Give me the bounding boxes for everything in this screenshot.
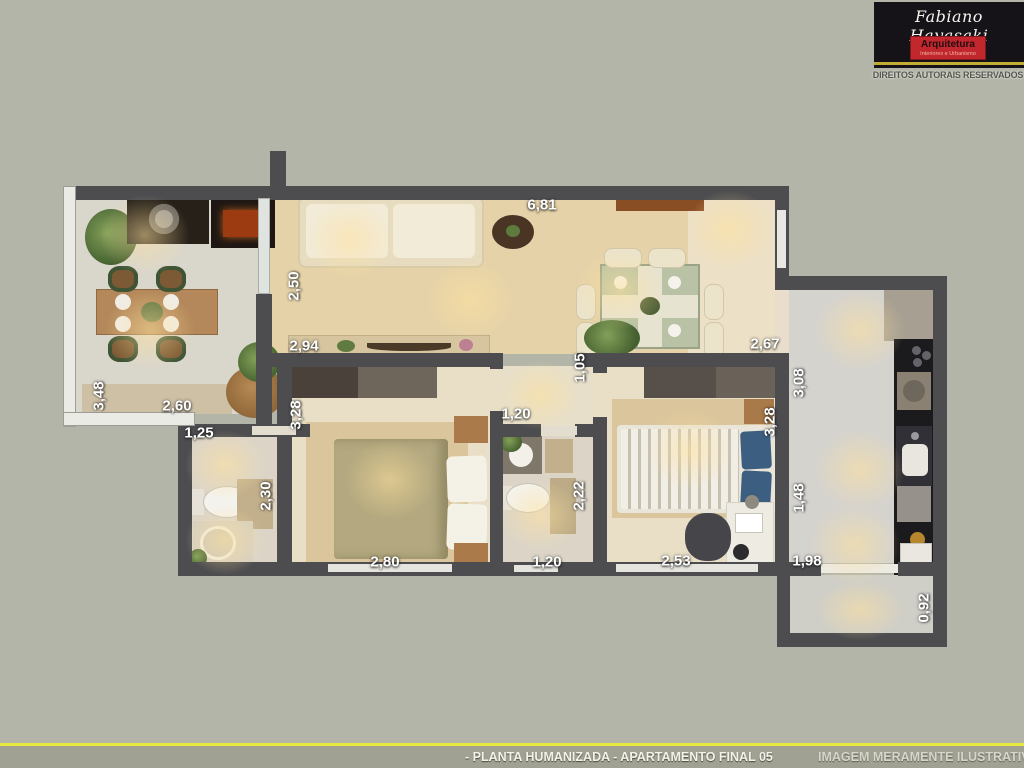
dining-area-floor xyxy=(688,198,776,354)
round-side-table xyxy=(492,215,534,249)
decor-flowers xyxy=(459,339,473,351)
dimension-label: 2,80 xyxy=(370,554,399,571)
dining-chair xyxy=(604,248,642,268)
footer-bar: - PLANTA HUMANIZADA - APARTAMENTO FINAL … xyxy=(0,746,1024,768)
wall-bath1-left xyxy=(178,424,192,576)
bedroom2-duvet xyxy=(621,429,739,509)
refrigerator xyxy=(884,283,934,341)
grill-embers xyxy=(223,210,263,237)
balcony-chair xyxy=(156,266,186,292)
bathroom2-toilet xyxy=(506,483,550,513)
burner-knob xyxy=(922,351,931,360)
faucet xyxy=(911,432,919,440)
dimension-label: 2,30 xyxy=(258,481,275,510)
balcony-dining-table xyxy=(96,289,218,335)
dimension-label: 2,67 xyxy=(750,336,779,353)
dimension-label: 1,48 xyxy=(791,483,808,512)
copyright-text: DIREITOS AUTORAIS RESERVADOS xyxy=(872,70,1024,80)
decor-sculpture xyxy=(367,343,451,351)
floor-lamp xyxy=(733,544,749,560)
sofa xyxy=(298,196,484,268)
dimension-label: 1,05 xyxy=(572,353,589,382)
centerpiece xyxy=(141,302,163,322)
service-area-floor xyxy=(789,575,933,634)
table-plant xyxy=(506,225,520,237)
wall-living-bottom-b xyxy=(577,353,789,367)
bedroom1-wardrobe xyxy=(291,367,437,398)
balcony-chair xyxy=(108,266,138,292)
dimension-label: 6,81 xyxy=(527,197,556,214)
wall-bedroom1-left xyxy=(277,353,292,575)
dining-chair xyxy=(648,248,686,268)
wall-top-stub xyxy=(270,151,286,191)
wall-bath2-top-a xyxy=(490,424,541,437)
wall-kitchen-right xyxy=(933,276,947,647)
dimension-label: 3,48 xyxy=(91,381,108,410)
cooktop xyxy=(897,372,931,410)
plate xyxy=(115,294,131,310)
dimension-label: 2,60 xyxy=(162,398,191,415)
counter-sink xyxy=(149,204,179,234)
balcony-sliding-door xyxy=(258,198,270,294)
footer-title: - PLANTA HUMANIZADA - APARTAMENTO FINAL … xyxy=(465,750,773,764)
dimension-label: 2,94 xyxy=(289,338,318,355)
burner-knob xyxy=(913,358,922,367)
plate xyxy=(668,324,681,337)
sofa-cushion xyxy=(393,204,475,258)
dimension-label: 1,20 xyxy=(501,406,530,423)
logo-badge: Arquitetura Interiores e Urbanismo xyxy=(910,36,986,60)
dimension-label: 1,98 xyxy=(792,553,821,570)
wall-living-bottom-a xyxy=(256,353,503,367)
dimension-label: 3,28 xyxy=(762,407,779,436)
centerpiece xyxy=(640,297,660,315)
dimension-label: 2,53 xyxy=(661,553,690,570)
wall-service-bottom xyxy=(777,633,947,647)
wall-top xyxy=(75,186,789,200)
dining-chair xyxy=(704,284,724,320)
living-window-right xyxy=(777,210,786,268)
plate xyxy=(614,276,627,289)
nightstand xyxy=(454,416,488,443)
dimension-label: 1,25 xyxy=(184,425,213,442)
desk-item xyxy=(735,513,763,533)
bedroom2-wardrobe xyxy=(644,367,775,398)
burner-knob xyxy=(912,346,921,355)
logo-tagline: Interiores e Urbanismo xyxy=(911,51,985,58)
bedroom2-door xyxy=(593,373,607,417)
dimension-label: 2,22 xyxy=(571,481,588,510)
floor-plan-canvas: 6,81 2,50 2,94 2,67 1,05 3,08 3,48 2,60 … xyxy=(0,0,1024,768)
oven xyxy=(897,486,931,522)
desk-chair xyxy=(685,513,731,561)
kitchen-sink xyxy=(902,444,928,476)
hall-plant xyxy=(584,320,640,356)
balcony-chair xyxy=(156,336,186,362)
service-door xyxy=(821,564,898,573)
bathroom2-mat xyxy=(545,439,573,473)
desk-item xyxy=(745,495,759,509)
sofa-cushion xyxy=(306,204,388,258)
dimension-label: 1,20 xyxy=(532,554,561,571)
wall-kitchen-service-b xyxy=(898,562,933,576)
dimension-label: 2,50 xyxy=(286,271,303,300)
logo-gold-line xyxy=(874,62,1024,65)
logo-field-label: Arquitetura xyxy=(911,39,985,51)
decor-greenery xyxy=(337,340,355,352)
footer-disclaimer: IMAGEM MERAMENTE ILUSTRATIVA xyxy=(818,750,1024,764)
bathroom2-door xyxy=(541,426,577,435)
desk xyxy=(726,502,774,566)
dimension-label: 3,08 xyxy=(791,368,808,397)
wall-bath2-top-b xyxy=(575,424,595,437)
dimension-label: 0,92 xyxy=(916,593,933,622)
logo: Fabiano Hayasaki Arquitetura Interiores … xyxy=(874,2,1024,68)
bedroom1-pillow xyxy=(446,455,488,502)
bedroom1-bed-duvet xyxy=(334,439,448,559)
dining-chair xyxy=(576,284,596,320)
dimension-label: 3,28 xyxy=(288,400,305,429)
plate xyxy=(115,316,131,332)
wall-kitchen-top xyxy=(789,276,947,290)
balcony-glass-wall-left xyxy=(63,186,76,427)
plate xyxy=(163,316,179,332)
balcony-chair xyxy=(108,336,138,362)
wall-bedroom2-right xyxy=(775,353,789,576)
plate xyxy=(163,294,179,310)
pan xyxy=(903,380,925,402)
plate xyxy=(668,276,681,289)
balcony-counter xyxy=(127,196,209,244)
